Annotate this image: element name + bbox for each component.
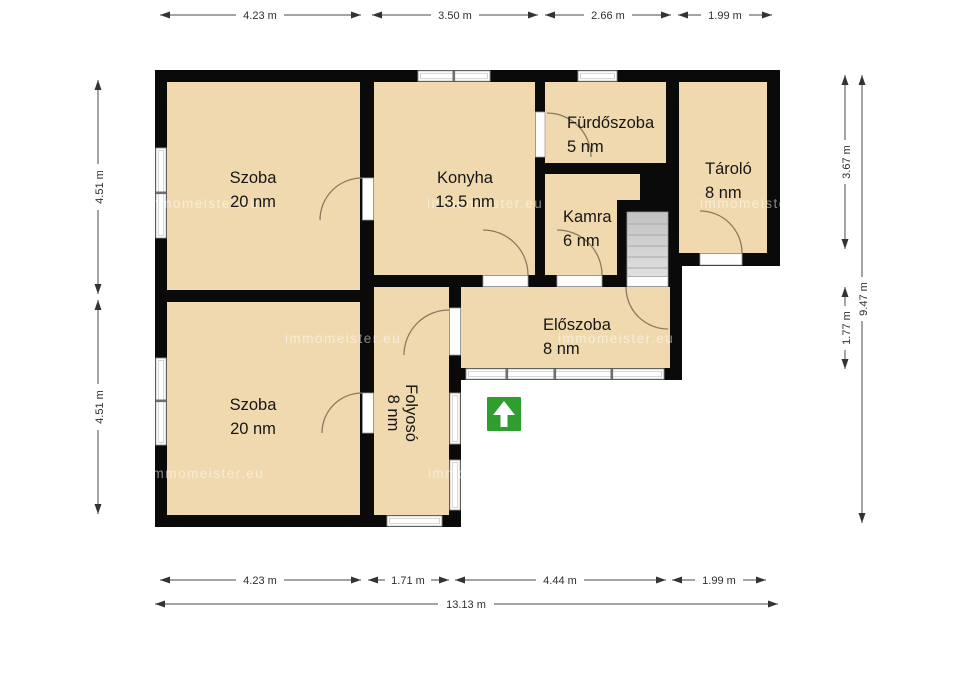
watermark-text: immomeister.eu — [428, 466, 544, 481]
door-threshold-furdoszoba — [536, 112, 546, 157]
window-eloszoba-bottom — [466, 369, 664, 379]
door-threshold-stairs — [627, 277, 668, 287]
room-area-szoba-bottom: 20 nm — [230, 420, 276, 438]
window-szoba-top-left — [156, 148, 166, 238]
dim-left-1: 4.51 m — [94, 170, 106, 204]
dim-top-1: 4.23 m — [243, 10, 277, 22]
watermark-text: immomeister.eu — [285, 331, 401, 346]
room-name-szoba-bottom: Szoba — [230, 396, 278, 414]
floorplan-svg: immomeister.eu immomeister.eu immomeiste… — [0, 0, 960, 679]
room-area-konyha: 13.5 nm — [435, 193, 495, 211]
room-area-szoba-top: 20 nm — [230, 193, 276, 211]
staircase — [627, 212, 668, 278]
window-konyha-top — [418, 71, 490, 81]
window-folyoso-bottom — [387, 516, 442, 526]
dim-top-3: 2.66 m — [591, 10, 625, 22]
dim-bottom-total: 13.13 m — [446, 599, 486, 611]
room-name-furdoszoba: Fürdőszoba — [567, 114, 655, 132]
door-threshold-eloszoba-folyoso — [450, 308, 461, 355]
door-threshold-kamra — [557, 276, 602, 287]
dimensions-bottom: 4.23 m 1.71 m 4.44 m 1.99 m 13.13 m — [155, 574, 778, 611]
dim-bottom-4: 1.99 m — [702, 575, 736, 587]
watermark-text: immomeister.eu — [703, 466, 819, 481]
dimensions-left: 4.51 m 4.51 m — [92, 80, 106, 514]
dim-bottom-1: 4.23 m — [243, 575, 277, 587]
room-name-tarolo: Tároló — [705, 160, 752, 178]
window-folyoso-right-upper — [450, 393, 460, 444]
dim-top-4: 1.99 m — [708, 10, 742, 22]
room-area-kamra: 6 nm — [563, 232, 600, 250]
room-area-furdoszoba: 5 nm — [567, 138, 604, 156]
room-area-folyoso: 8 nm — [384, 395, 402, 432]
room-name-folyoso: Folyosó — [402, 384, 420, 442]
dimensions-top: 4.23 m 3.50 m 2.66 m 1.99 m — [160, 9, 772, 22]
entrance-arrow-icon — [487, 397, 521, 431]
dim-right-total: 9.47 m — [858, 282, 870, 316]
dim-bottom-3: 4.44 m — [543, 575, 577, 587]
dim-top-2: 3.50 m — [438, 10, 472, 22]
room-area-eloszoba: 8 nm — [543, 340, 580, 358]
dimensions-right: 3.67 m 1.77 m 9.47 m — [839, 75, 870, 523]
door-threshold-szoba-top — [363, 178, 374, 220]
dim-left-2: 4.51 m — [94, 390, 106, 424]
door-threshold-szoba-bottom — [363, 393, 374, 433]
dim-right-1: 3.67 m — [841, 145, 853, 179]
dim-right-2: 1.77 m — [841, 311, 853, 345]
room-name-konyha: Konyha — [437, 169, 494, 187]
room-name-szoba-top: Szoba — [230, 169, 278, 187]
room-area-tarolo: 8 nm — [705, 184, 742, 202]
room-name-eloszoba: Előszoba — [543, 316, 612, 334]
room-name-kamra: Kamra — [563, 208, 612, 226]
watermark-text: immomeister.eu — [148, 466, 264, 481]
room-floor-kamra-notch — [617, 174, 640, 200]
door-threshold-konyha — [483, 276, 528, 287]
window-szoba-bottom-left — [156, 358, 166, 445]
door-threshold-tarolo — [700, 254, 742, 266]
window-furdoszoba-top — [578, 71, 617, 81]
floorplan-canvas: immomeister.eu immomeister.eu immomeiste… — [0, 0, 960, 679]
dim-bottom-2: 1.71 m — [391, 575, 425, 587]
